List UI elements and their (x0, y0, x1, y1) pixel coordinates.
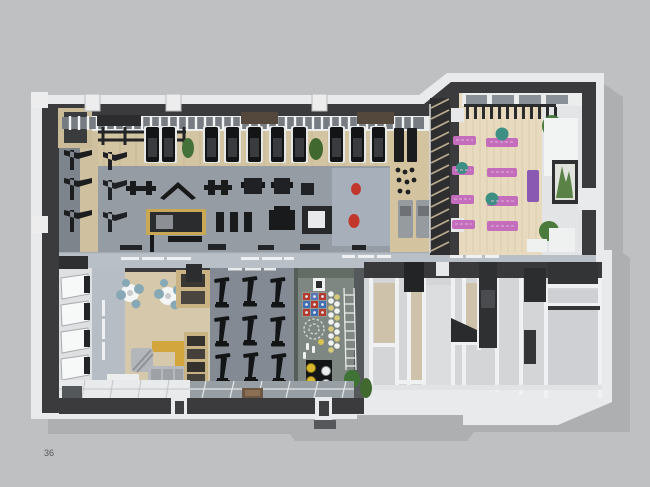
svg-text:36: 36 (44, 448, 54, 458)
